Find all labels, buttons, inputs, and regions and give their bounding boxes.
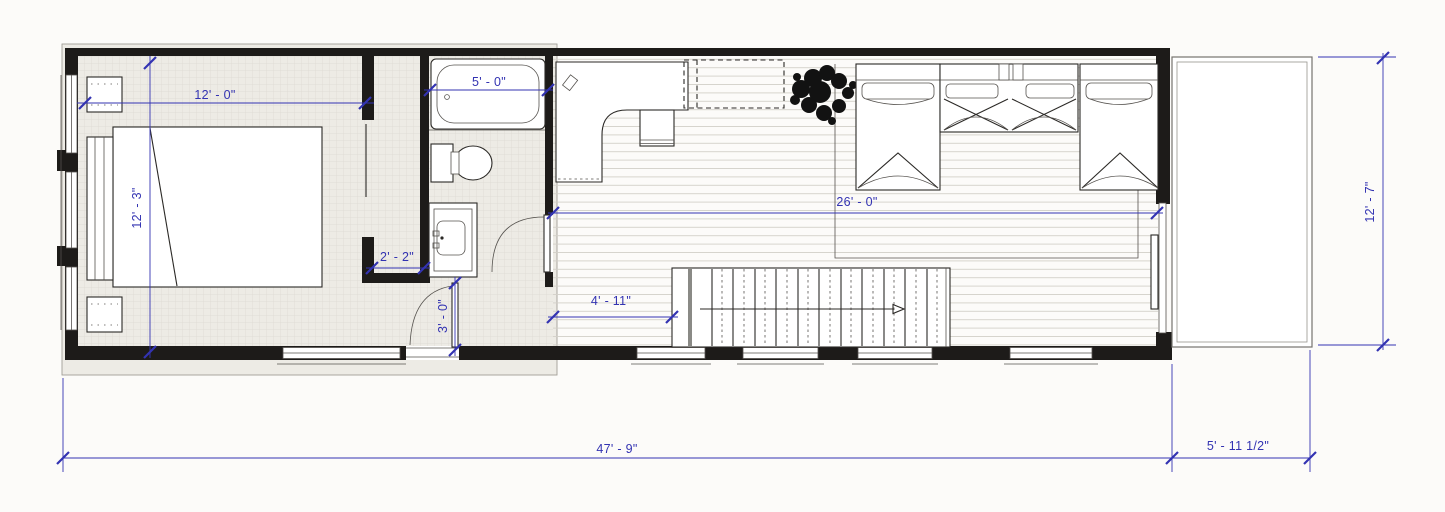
dimension-value[interactable]: 47' - 9" — [596, 442, 637, 456]
top-wall[interactable] — [65, 48, 1168, 56]
deck[interactable] — [1172, 57, 1312, 347]
chair-seat — [640, 110, 674, 146]
headboard — [87, 137, 113, 280]
bed-post — [1013, 64, 1023, 80]
nightstand-top[interactable] — [87, 77, 122, 112]
pillow — [1026, 84, 1074, 98]
toilet-bowl — [454, 146, 492, 180]
dimension-value[interactable]: 3' - 0" — [436, 299, 450, 333]
dimension-value[interactable]: 4' - 11" — [591, 294, 631, 308]
dimension-value[interactable]: 12' - 0" — [194, 88, 235, 102]
bathroom-right-wall[interactable] — [545, 56, 553, 215]
tub-inner — [437, 65, 539, 123]
vanity-sink[interactable] — [429, 203, 477, 277]
dimension-value[interactable]: 2' - 2" — [380, 250, 414, 264]
bathroom-door-leaf[interactable] — [544, 215, 550, 272]
faucet-spout — [440, 236, 443, 239]
dimension-deck-width[interactable]: 5' - 11 1/2" — [1168, 350, 1316, 472]
bottom-wall[interactable] — [65, 346, 1172, 360]
closet-bottom-wall[interactable] — [362, 273, 430, 283]
bathtub[interactable] — [431, 59, 545, 129]
bathroom-right-wall-stub[interactable] — [545, 272, 553, 287]
twin-bed-left[interactable] — [856, 64, 940, 190]
bedroom-closet-wall-upper[interactable] — [362, 56, 374, 120]
pillow — [862, 83, 934, 99]
desk-chair[interactable] — [640, 110, 674, 146]
stair-enclosure[interactable] — [672, 268, 950, 347]
staircase[interactable] — [672, 268, 950, 347]
pillow — [1086, 83, 1152, 99]
deck-outer[interactable] — [1172, 57, 1312, 347]
nightstand-bottom[interactable] — [87, 297, 122, 332]
bunk-bed-middle[interactable] — [940, 64, 1078, 132]
window-mullion — [57, 150, 66, 171]
floor-plan-sheet: 12' - 0" 12' - 3" 5' - 0" 2' - 2" 3' - 0… — [0, 0, 1445, 512]
door-panel[interactable] — [1151, 235, 1158, 309]
window-mullion — [57, 246, 66, 266]
toilet[interactable] — [431, 144, 492, 182]
right-wall-lower[interactable] — [1156, 332, 1172, 360]
pillow — [946, 84, 998, 98]
dimension-value[interactable]: 5' - 11 1/2" — [1207, 439, 1269, 453]
bed-post — [999, 64, 1009, 80]
floor-plan-canvas[interactable]: 12' - 0" 12' - 3" 5' - 0" 2' - 2" 3' - 0… — [0, 0, 1445, 512]
dimension-overall-length[interactable]: 47' - 9" — [57, 364, 1178, 472]
door-track — [1159, 203, 1166, 333]
dimension-value[interactable]: 12' - 7" — [1363, 181, 1377, 222]
master-bed[interactable] — [87, 127, 322, 287]
dimension-value[interactable]: 5' - 0" — [472, 75, 506, 89]
mattress[interactable] — [113, 127, 322, 287]
twin-bed-right[interactable] — [1080, 64, 1158, 190]
stair-stringer — [688, 268, 692, 347]
toilet-seat-hinge — [451, 152, 459, 174]
dimension-value[interactable]: 12' - 3" — [130, 187, 144, 228]
dimension-value[interactable]: 26' - 0" — [836, 195, 877, 209]
dimension-deck-depth[interactable]: 12' - 7" — [1318, 52, 1396, 351]
toilet-tank — [431, 144, 453, 182]
left-wall-windows[interactable] — [57, 75, 77, 330]
